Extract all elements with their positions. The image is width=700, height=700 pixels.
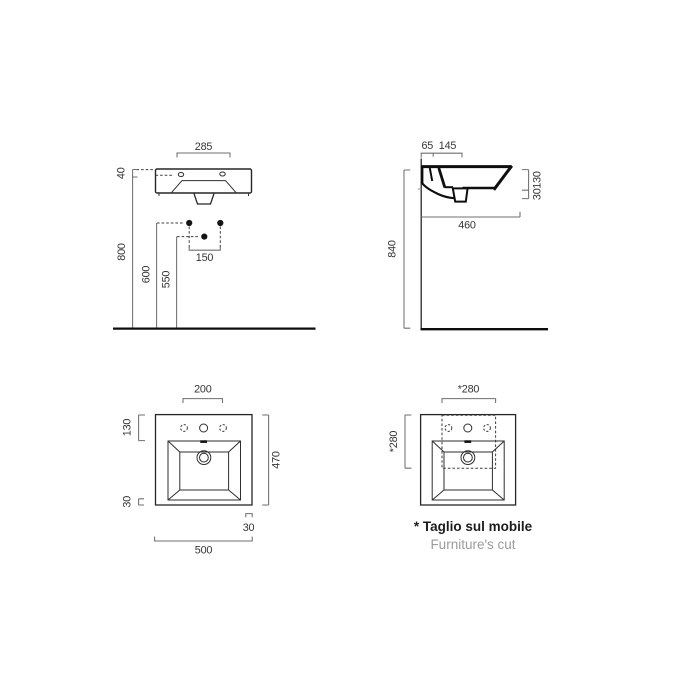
plan-outer-rim [156, 415, 253, 505]
dim-tap-edge-offset: 65 [421, 140, 433, 152]
dim-bracket-470 [262, 415, 268, 505]
drain-point [201, 234, 207, 240]
dim-install-height: 800 [116, 243, 128, 261]
taphole-optional-right [220, 425, 227, 432]
dim-basin-front-height: 130 [532, 171, 544, 189]
dim-front-top-width: 285 [195, 141, 213, 153]
dim-bracket-130-30 [522, 170, 529, 199]
cut-taphole-optional-right [484, 425, 491, 432]
dim-overall-depth: 460 [458, 220, 476, 232]
drain-outlet-front [194, 194, 214, 204]
dim-bracket-280-top [442, 399, 496, 403]
dim-rim-side: 30 [122, 496, 134, 508]
profile-taphole-back [439, 168, 445, 187]
technical-drawing-canvas: 285 40 800 600 550 150 [0, 0, 700, 700]
dim-cut-width: *280 [458, 384, 480, 396]
dim-rim-height: 40 [116, 167, 128, 179]
dim-side-install-height: 840 [387, 240, 399, 258]
corner-notches [159, 194, 249, 196]
dim-bracket-460 [421, 212, 520, 217]
dim-overall-width: 500 [195, 545, 213, 557]
taphole-optional-left [181, 425, 188, 432]
plan-view: 200 130 470 30 30 500 [122, 384, 283, 557]
dim-tap-zone-depth: 130 [122, 419, 134, 437]
dim-siphon-height: 550 [161, 271, 173, 289]
dim-bracket-30-corner [246, 514, 252, 518]
dim-bracket-30-left [139, 499, 144, 505]
plan-basin-floor [180, 452, 229, 490]
dim-bracket-40 [133, 170, 138, 178]
dim-bracket-200 [183, 399, 223, 403]
profile-underside-curve [422, 183, 454, 198]
dim-ledge-thickness: 30 [532, 188, 544, 200]
dim-bracket-65-145 [421, 153, 462, 157]
dim-overall-depth-plan: 470 [271, 451, 283, 469]
cut-outer-rim [421, 415, 516, 505]
note-furnitures-cut: Furniture's cut [398, 537, 548, 552]
cut-basin-floor [444, 452, 492, 490]
front-view: 285 40 800 600 550 150 [113, 141, 316, 329]
dim-bracket-500 [155, 537, 253, 541]
plan-basin-bevels [168, 441, 241, 500]
cut-drain-inner-circle [464, 453, 473, 462]
cut-taphole-center [464, 424, 472, 432]
dim-bracket-130-plan [139, 415, 145, 441]
dim-bracket-840 [404, 170, 410, 328]
dim-tap-spacing: 145 [439, 140, 457, 152]
dim-tap-zone-width: 200 [194, 384, 212, 396]
note-taglio-sul-mobile: * Taglio sul mobile [398, 519, 548, 534]
taphole-center [200, 424, 208, 432]
profile-drain-box [453, 188, 468, 201]
dim-rim-corner: 30 [243, 522, 255, 534]
dim-drain-line-height: 600 [141, 266, 153, 284]
fixing-hole-left [186, 220, 192, 226]
cut-basin-bevels [432, 441, 504, 500]
furniture-cut-view: *280 *280 [388, 384, 516, 506]
profile-taphole-front [430, 168, 432, 181]
dim-fixing-spacing: 150 [196, 252, 214, 264]
cut-taphole-optional-left [445, 425, 452, 432]
basin-side-profile [418, 166, 512, 202]
dim-bracket-285 [177, 153, 230, 158]
fixing-hole-right [217, 220, 223, 226]
side-view: 65 145 840 460 130 30 [387, 140, 549, 329]
dim-bracket-280-left [405, 415, 411, 468]
washbasin-drawing-svg: 285 40 800 600 550 150 [0, 0, 700, 700]
dim-bracket-150 [189, 246, 220, 250]
dim-cut-depth: *280 [388, 431, 400, 453]
profile-back-slant [494, 166, 512, 190]
drain-inner-circle [200, 453, 209, 462]
